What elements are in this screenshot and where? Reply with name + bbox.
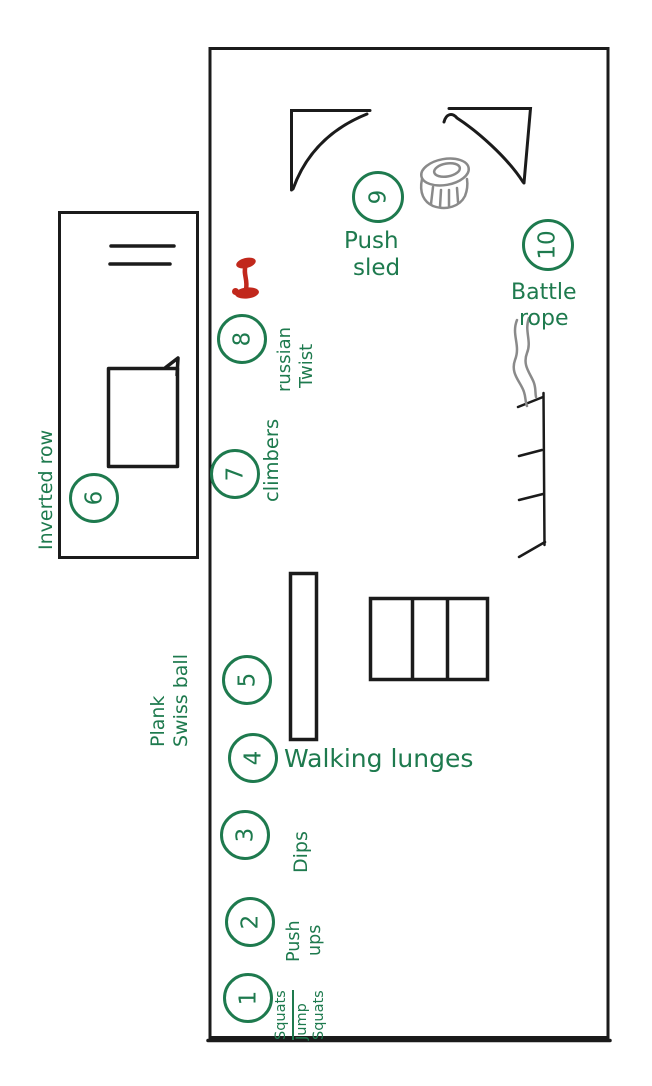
station-1-marker: 1 [223,973,273,1023]
tire-icon [419,155,471,208]
station-8-number: 8 [229,332,255,347]
floor-plan-drawing [0,0,652,1086]
station-3-label: Dips [288,813,314,873]
station-4-marker: 4 [228,733,278,783]
station-5-label: Plank Swiss ball [147,613,193,747]
station-6-label: Inverted row [32,396,60,550]
station-6-marker: 6 [69,473,119,523]
station-6-number: 6 [81,491,107,506]
station-2-number: 2 [237,915,263,930]
station-9-label: Push sled [344,228,400,282]
station-7-marker: 7 [210,449,260,499]
station-7-label: climbers [259,390,285,502]
station-8-marker: 8 [217,314,267,364]
station-4-number: 4 [240,751,266,766]
dumbbell-icon [232,256,260,300]
station-2-marker: 2 [225,897,275,947]
station-4-label: Walking lunges [284,744,473,774]
station-3-number: 3 [232,828,258,843]
station-1-number: 1 [235,991,261,1006]
station-10-marker: 10 [522,219,574,271]
station-3-marker: 3 [220,810,270,860]
station-9-number: 9 [365,190,391,205]
exercise-mat [291,574,317,740]
station-5-number: 5 [234,673,260,688]
station-7-number: 7 [222,467,248,482]
main-room-outline [208,49,610,1041]
bench-icon [109,358,179,467]
station-10-number: 10 [535,230,561,259]
wall-ladder-icon [518,393,545,557]
station-8-label: russian Twist [274,292,318,392]
station-10-label: Battle rope [511,280,576,332]
station-5-marker: 5 [222,655,272,705]
storage-rack [371,598,488,680]
station-1-label: Squats Jump Squats [278,964,324,1040]
floor-plan-canvas: 1 2 3 4 5 6 7 8 9 10 Squats Jump Squats … [0,0,652,1086]
wall-marks [110,246,174,264]
station-2-label: Push ups [284,888,326,962]
station-9-marker: 9 [352,171,404,223]
